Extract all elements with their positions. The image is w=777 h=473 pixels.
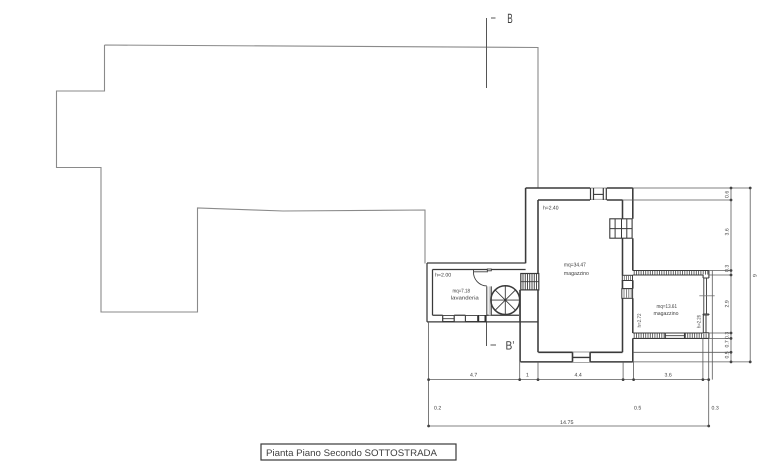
svg-text:3.6: 3.6 [665, 373, 672, 379]
svg-text:lavanderia: lavanderia [451, 295, 479, 301]
svg-text:h=2.00: h=2.00 [435, 273, 451, 279]
svg-text:1: 1 [526, 373, 529, 379]
svg-text:9: 9 [753, 274, 759, 277]
svg-text:0.3: 0.3 [712, 406, 719, 412]
svg-text:0.3: 0.3 [725, 332, 731, 339]
svg-text:h=2.72: h=2.72 [637, 313, 643, 327]
svg-text:0.5: 0.5 [634, 406, 641, 412]
svg-text:0.6: 0.6 [725, 191, 731, 198]
svg-text:0.5: 0.5 [725, 351, 731, 358]
svg-text:4.4: 4.4 [575, 373, 582, 379]
svg-text:magazzino: magazzino [654, 311, 679, 317]
svg-text:h=2.26: h=2.26 [696, 315, 702, 328]
svg-text:0.3: 0.3 [725, 265, 731, 272]
svg-text:B’: B’ [506, 339, 515, 353]
svg-text:0.2: 0.2 [434, 406, 441, 412]
svg-text:3.6: 3.6 [725, 228, 731, 235]
svg-text:14.75: 14.75 [560, 420, 574, 426]
svg-text:h=2.40: h=2.40 [543, 205, 559, 211]
svg-text:mq=13.61: mq=13.61 [657, 304, 678, 310]
svg-text:4.7: 4.7 [470, 373, 477, 379]
svg-text:mq=7.18: mq=7.18 [453, 289, 471, 295]
svg-text:mq=34.47: mq=34.47 [564, 262, 586, 268]
svg-text:B: B [507, 11, 513, 26]
svg-text:2.9: 2.9 [725, 300, 731, 307]
svg-text:magazzino: magazzino [564, 270, 589, 277]
svg-text:Pianta Piano Secondo SOTTOSTRA: Pianta Piano Secondo SOTTOSTRADA [266, 448, 438, 459]
svg-text:0.7: 0.7 [725, 340, 731, 347]
